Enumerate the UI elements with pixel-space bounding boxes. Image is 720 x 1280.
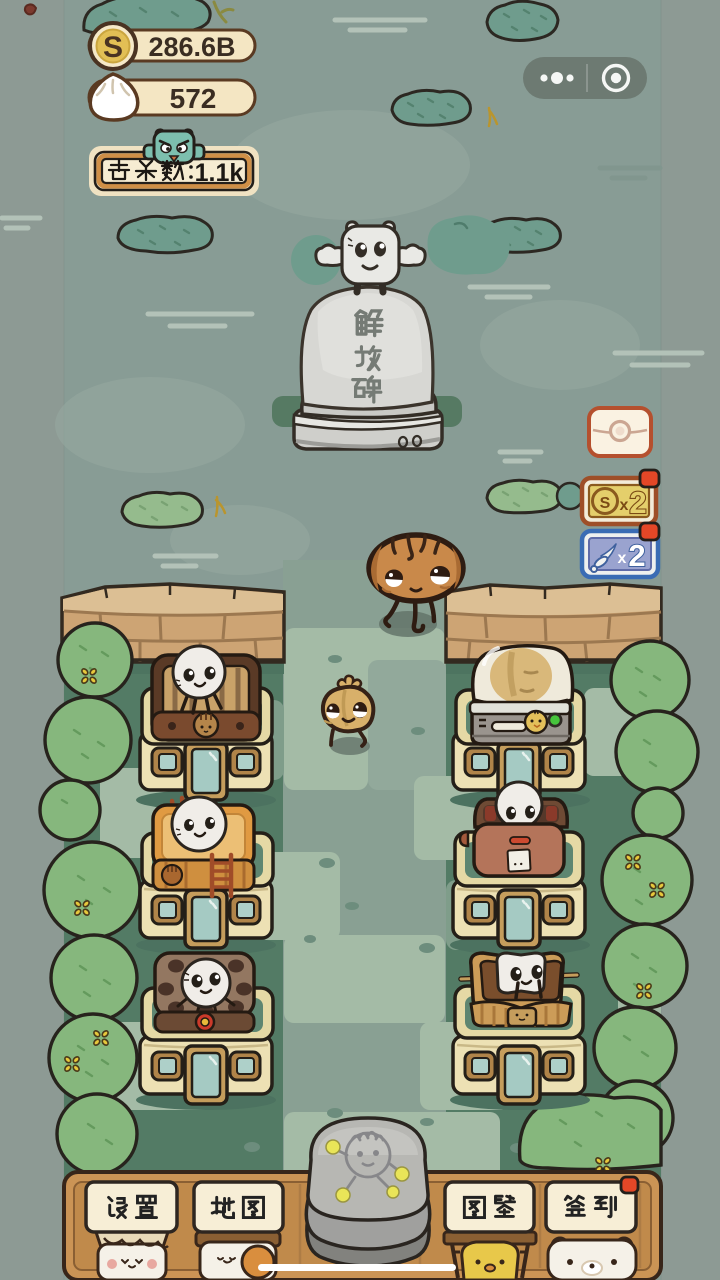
- svg-text:1.1k: 1.1k: [195, 159, 244, 187]
- svg-text:x: x: [618, 550, 627, 567]
- svg-text:2: 2: [628, 538, 645, 573]
- svg-text:286.6B: 286.6B: [148, 32, 235, 62]
- svg-text:x: x: [620, 497, 629, 514]
- svg-text:S: S: [103, 31, 123, 64]
- svg-text:S: S: [600, 495, 611, 512]
- svg-text:572: 572: [170, 83, 217, 114]
- svg-text:2: 2: [629, 485, 646, 520]
